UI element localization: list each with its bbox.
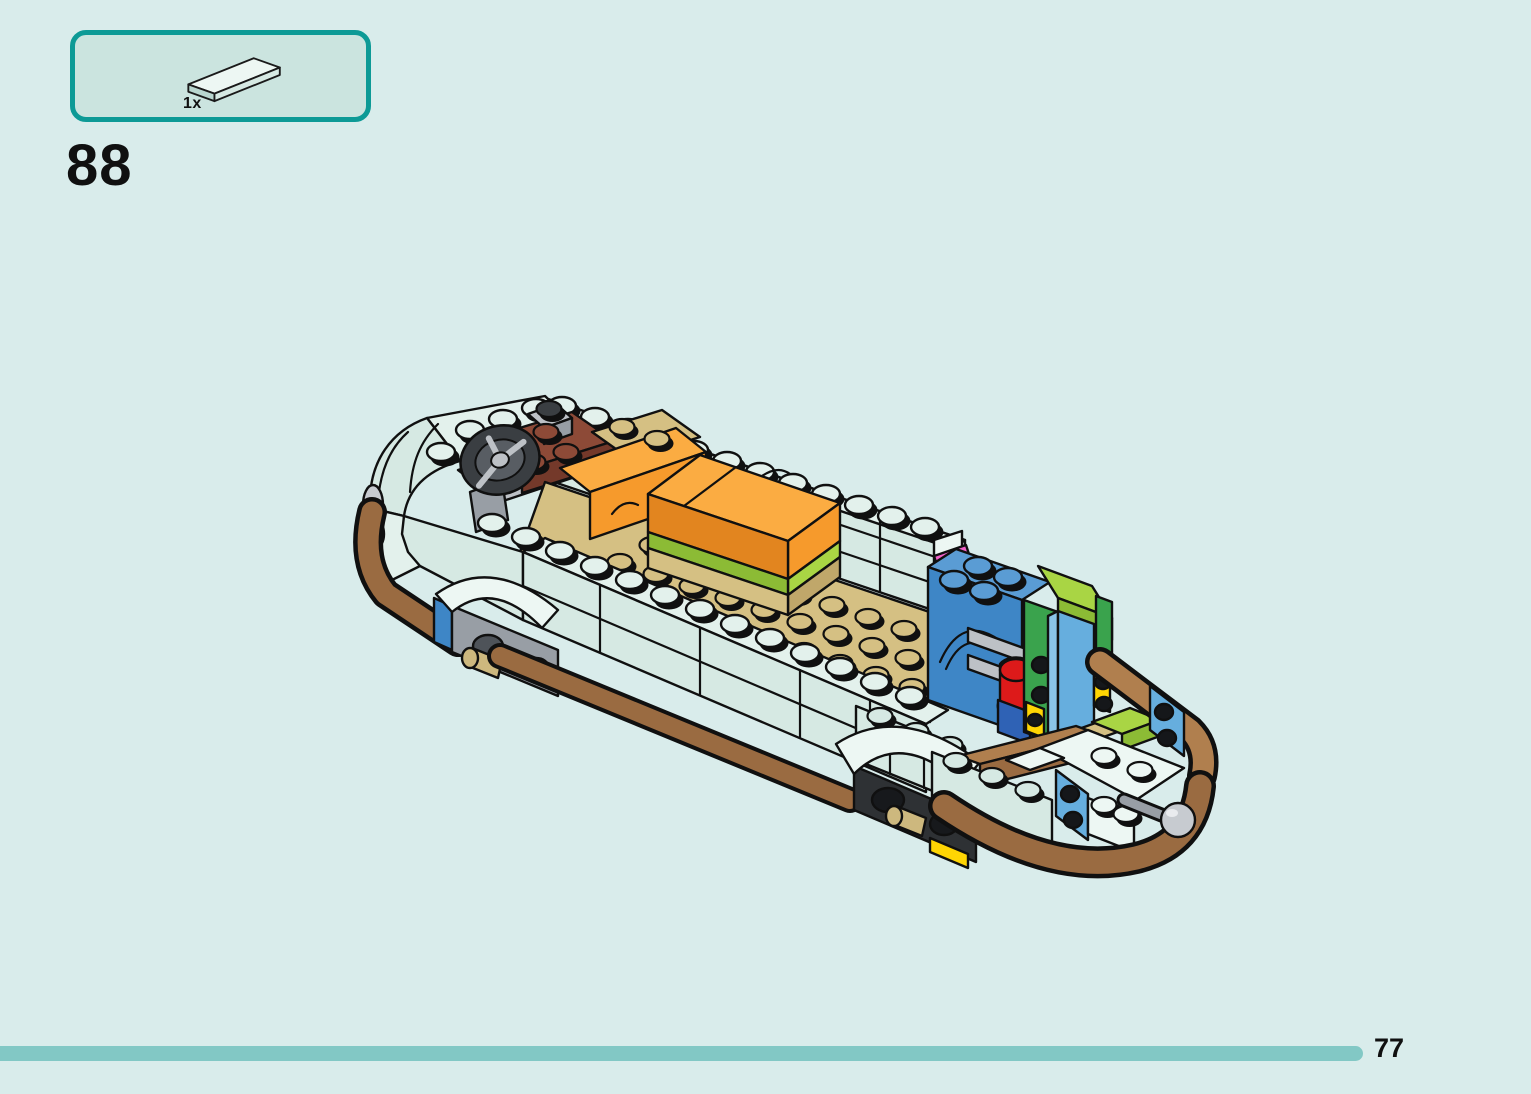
page-number: 77 (1374, 1033, 1424, 1064)
model-illustration-wrap (0, 0, 1531, 1089)
progress-bar (0, 1046, 1363, 1061)
rear-assembly (928, 531, 1112, 755)
model-illustration (0, 0, 1531, 1089)
instruction-page: { "parts_panel": { "count_label": "1x", … (0, 0, 1531, 1089)
